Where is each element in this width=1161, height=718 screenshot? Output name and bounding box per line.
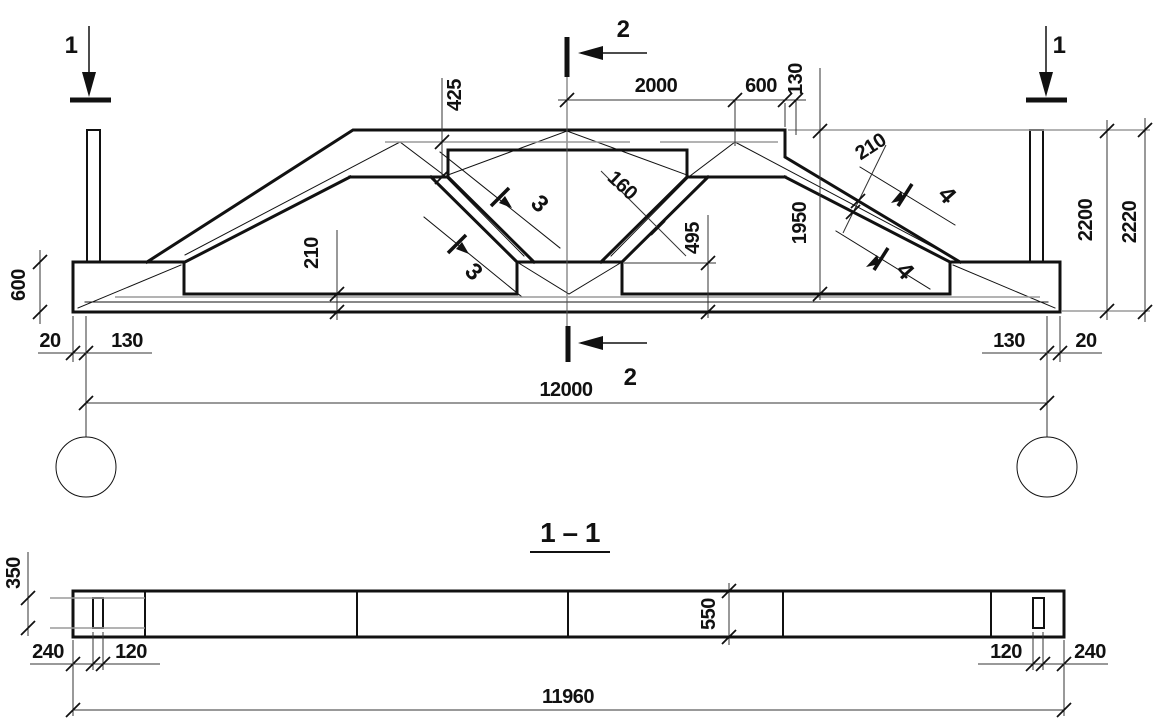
section-label-4: 4 bbox=[932, 181, 961, 209]
svg-text:2200: 2200 bbox=[1075, 198, 1097, 241]
grid-bubble-left bbox=[56, 437, 116, 497]
svg-text:240: 240 bbox=[1074, 641, 1106, 663]
post-cutout-left bbox=[93, 598, 103, 628]
dim-130-top: 130 bbox=[785, 63, 807, 95]
section-label-1: 1 bbox=[1053, 32, 1066, 59]
section-cut-1-right: 1 bbox=[1026, 26, 1067, 100]
dim-2200: 2200 bbox=[1075, 120, 1114, 320]
section-label-1: 1 bbox=[65, 32, 78, 59]
section-view-title: 1 – 1 bbox=[531, 517, 609, 552]
svg-text:20: 20 bbox=[1075, 330, 1097, 352]
section-label-3: 3 bbox=[525, 190, 553, 218]
svg-text:210: 210 bbox=[851, 129, 890, 165]
post-cutout-right bbox=[1033, 598, 1044, 628]
dim-495: 495 bbox=[624, 215, 716, 319]
reinforcement-thin-lines bbox=[78, 76, 1055, 327]
svg-text:11960: 11960 bbox=[542, 686, 594, 708]
dim-bottom-right-130-20: 130 20 bbox=[982, 316, 1102, 362]
svg-text:160: 160 bbox=[603, 167, 642, 205]
svg-text:1950: 1950 bbox=[789, 201, 811, 244]
truss-drawing-canvas: 1 1 2 2 3 3 4 4 bbox=[0, 0, 1161, 718]
section-title: 1 – 1 bbox=[540, 517, 600, 548]
svg-text:550: 550 bbox=[698, 598, 720, 630]
section-label-3: 3 bbox=[459, 258, 487, 286]
dim-2220: 2220 bbox=[1119, 118, 1152, 322]
svg-text:240: 240 bbox=[32, 641, 64, 663]
drawing-sheet: 1 1 2 2 3 3 4 4 bbox=[0, 0, 1161, 718]
section-arrow-left-icon bbox=[578, 336, 603, 350]
dim-11960: 11960 bbox=[66, 640, 1071, 717]
section-label-2: 2 bbox=[617, 16, 630, 43]
svg-text:350: 350 bbox=[3, 557, 25, 589]
section-cut-3-marks: 3 3 bbox=[448, 188, 553, 286]
section-cut-2-top: 2 bbox=[567, 16, 647, 77]
section-view-structure bbox=[50, 591, 1064, 637]
dim-210-bottom-chord: 210 bbox=[301, 230, 344, 320]
grid-bubble-right bbox=[1017, 437, 1077, 497]
section-arrow-left-icon bbox=[578, 46, 603, 60]
svg-text:130: 130 bbox=[993, 330, 1025, 352]
svg-text:120: 120 bbox=[115, 641, 147, 663]
svg-text:2220: 2220 bbox=[1119, 200, 1141, 243]
svg-text:425: 425 bbox=[444, 79, 466, 111]
dim-2000: 2000 bbox=[635, 75, 678, 97]
dim-1950: 1950 bbox=[789, 68, 827, 301]
section-cut-1-left: 1 bbox=[65, 26, 111, 100]
section-label-2: 2 bbox=[624, 364, 637, 391]
svg-text:120: 120 bbox=[990, 641, 1022, 663]
dim-600-top: 600 bbox=[745, 75, 777, 97]
section-arrow-down-icon bbox=[1039, 72, 1053, 97]
section-label-4: 4 bbox=[890, 257, 919, 285]
svg-text:495: 495 bbox=[682, 222, 704, 254]
svg-text:210: 210 bbox=[301, 237, 323, 269]
svg-text:20: 20 bbox=[39, 330, 61, 352]
dim-bottom-left-20-130: 20 130 bbox=[38, 316, 152, 362]
section-arrow-down-icon bbox=[82, 72, 96, 97]
svg-text:12000: 12000 bbox=[539, 379, 592, 401]
dim-350: 350 bbox=[3, 552, 35, 636]
svg-text:130: 130 bbox=[111, 330, 143, 352]
dim-600-left: 600 bbox=[8, 250, 47, 324]
svg-text:600: 600 bbox=[8, 269, 30, 301]
reinforcement-gray-lines bbox=[115, 130, 1150, 311]
dim-top-row: 2000 600 130 bbox=[558, 63, 807, 146]
